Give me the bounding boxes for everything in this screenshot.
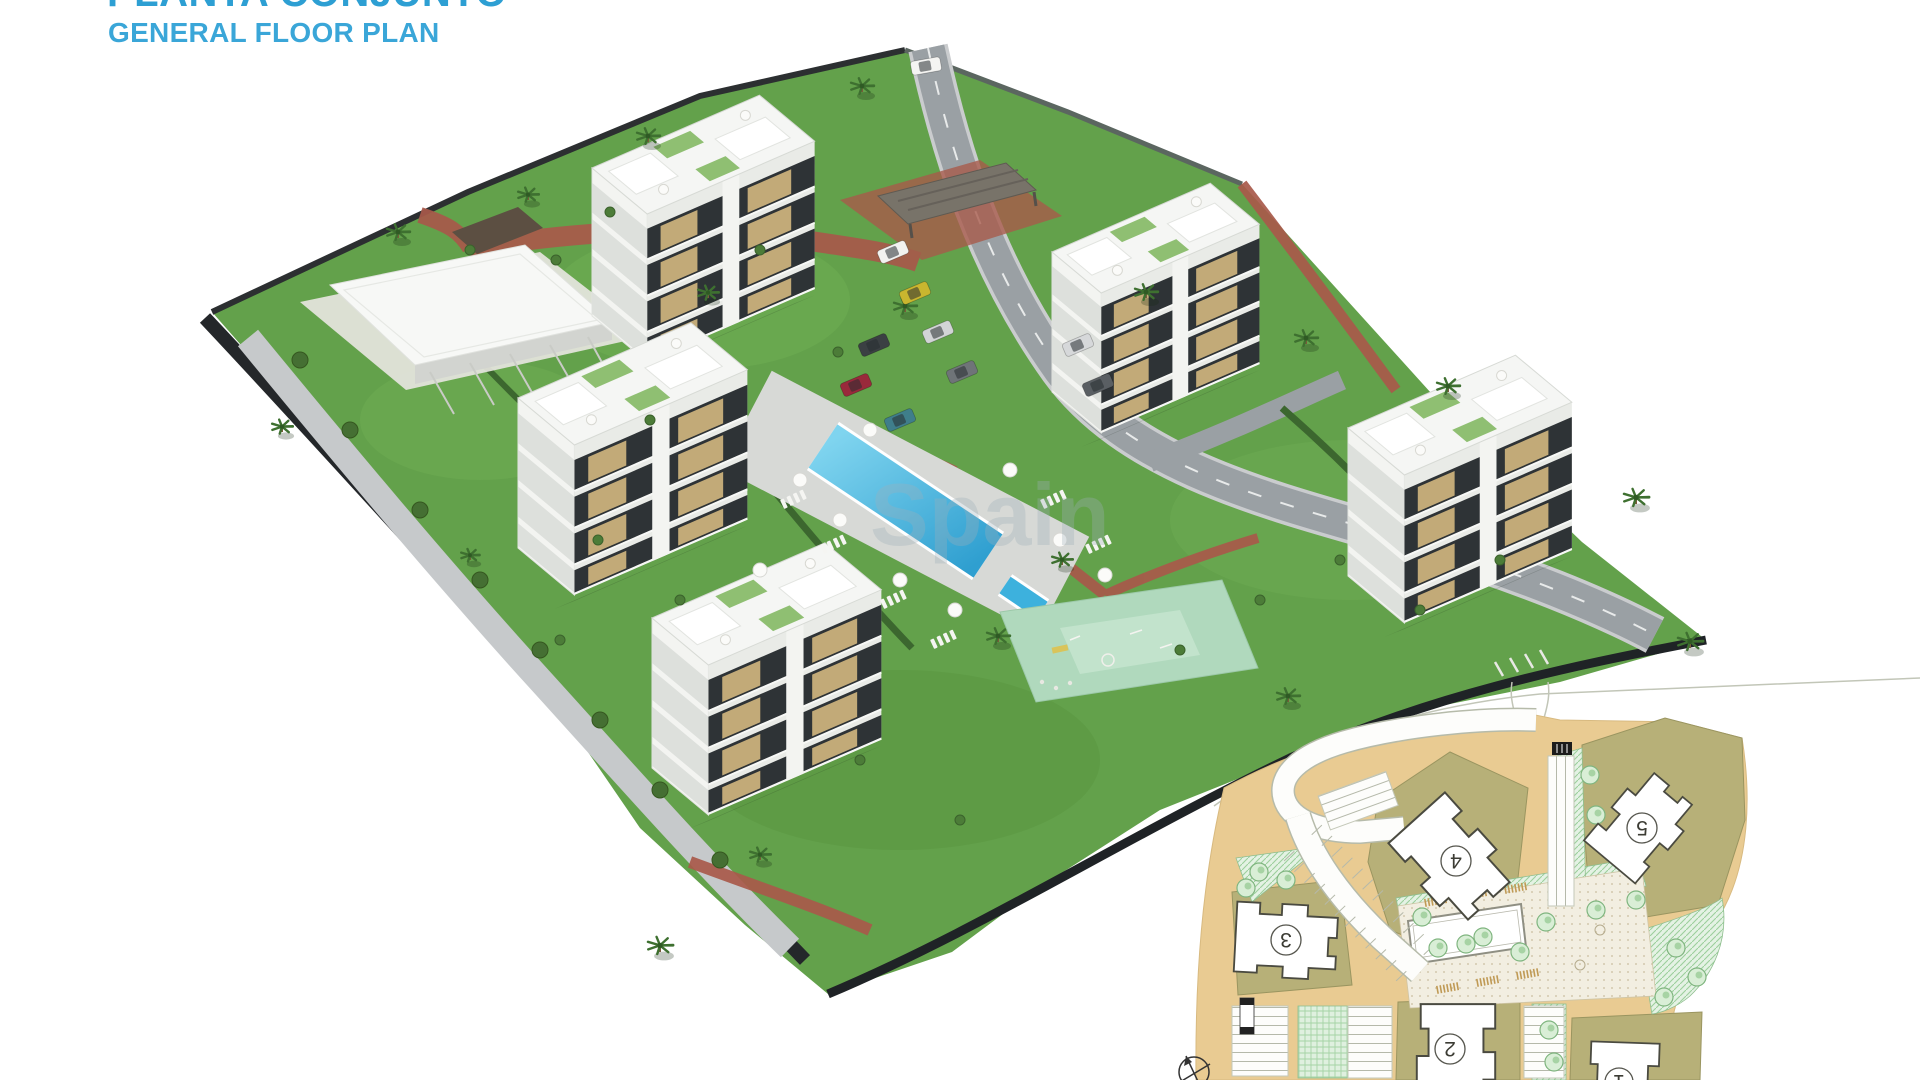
- label-building-4: 4: [1450, 849, 1462, 872]
- site-plan: 4 5 3 2 1: [0, 0, 1920, 1080]
- page: PLANTA CONJUNTO GENERAL FLOOR PLAN: [0, 0, 1920, 1080]
- page-title: PLANTA CONJUNTO: [107, 0, 507, 13]
- label-building-3: 3: [1280, 928, 1292, 951]
- label-building-1: 1: [1613, 1070, 1625, 1080]
- gate-icon: [1240, 998, 1254, 1034]
- page-title-block: PLANTA CONJUNTO GENERAL FLOOR PLAN: [107, 0, 507, 47]
- label-building-2: 2: [1444, 1037, 1456, 1060]
- label-building-5: 5: [1636, 816, 1648, 839]
- page-subtitle: GENERAL FLOOR PLAN: [108, 19, 507, 47]
